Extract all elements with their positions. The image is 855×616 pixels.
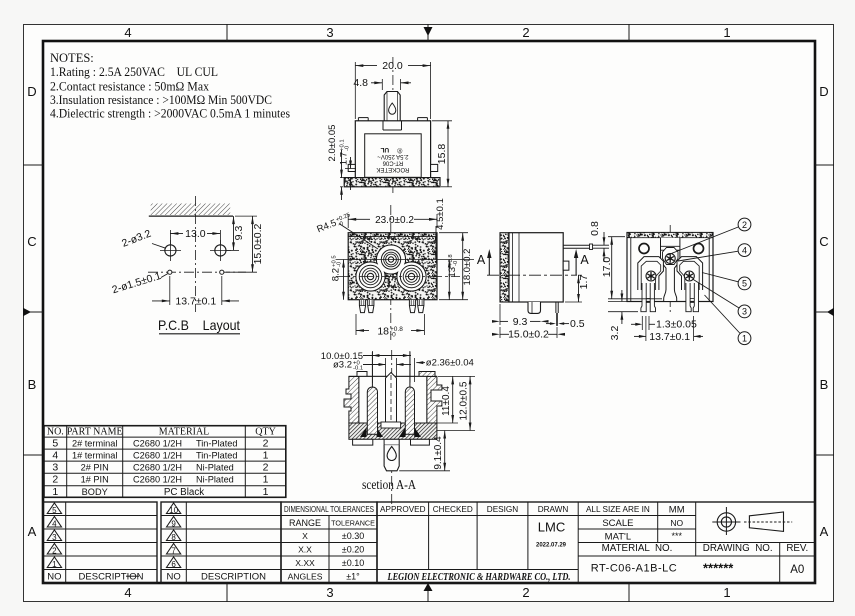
svg-text:A: A (28, 524, 37, 539)
svg-text:B: B (820, 377, 829, 392)
svg-text:SCALE: SCALE (602, 518, 633, 529)
svg-text:Ni-Plated: Ni-Plated (196, 475, 234, 485)
svg-text:Ni-Plated: Ni-Plated (196, 462, 234, 472)
svg-text:C2680 1/2H: C2680 1/2H (133, 438, 182, 448)
svg-text:MM: MM (669, 504, 685, 515)
svg-text:RANGE: RANGE (289, 518, 321, 528)
svg-text:11±0.4: 11±0.4 (441, 386, 452, 416)
svg-text:X.XX: X.XX (295, 558, 315, 568)
svg-text:MATERIAL NO.: MATERIAL NO. (602, 543, 673, 554)
svg-text:®: ® (396, 146, 402, 154)
svg-text:2: 2 (522, 585, 529, 600)
svg-text:A: A (820, 524, 829, 539)
svg-text:4: 4 (52, 519, 57, 528)
svg-text:C2680 1/2H: C2680 1/2H (133, 475, 182, 485)
svg-text:4: 4 (124, 25, 131, 40)
svg-text:LEGION ELECTRONIC & HARDWARE C: LEGION ELECTRONIC & HARDWARE CO., LTD. (387, 571, 571, 583)
svg-text:3: 3 (52, 533, 57, 542)
svg-text:13.7±0.1: 13.7±0.1 (649, 331, 690, 343)
svg-text:15.8: 15.8 (436, 144, 448, 165)
svg-text:5: 5 (52, 506, 57, 515)
svg-text:20.0: 20.0 (382, 60, 403, 72)
svg-text:9: 9 (171, 519, 176, 528)
svg-text:-0: -0 (390, 332, 396, 339)
svg-text:2# PIN: 2# PIN (81, 462, 109, 472)
svg-text:A0: A0 (790, 564, 804, 576)
svg-text:C2680 1/2H: C2680 1/2H (133, 450, 182, 460)
svg-text:DRAWING NO.: DRAWING NO. (703, 543, 773, 554)
svg-text:1.Rating : 2.5A 250VAC UL C: 1.Rating : 2.5A 250VAC UL CUL (50, 65, 218, 79)
svg-text:APPROVED: APPROVED (380, 505, 426, 514)
svg-text:2: 2 (52, 474, 58, 486)
svg-text:Tin-Plated: Tin-Plated (196, 438, 238, 448)
svg-text:12.0±0.5: 12.0±0.5 (459, 381, 470, 420)
svg-text:3: 3 (742, 307, 747, 317)
svg-text:NO: NO (166, 572, 180, 583)
svg-text:1: 1 (52, 560, 57, 569)
svg-text:9.3: 9.3 (513, 316, 528, 328)
svg-text:-0: -0 (453, 260, 459, 266)
svg-text:CHECKED: CHECKED (433, 505, 473, 514)
svg-text:17.0: 17.0 (601, 257, 613, 278)
svg-text:PART NAME: PART NAME (67, 427, 123, 438)
svg-text:DESCRIPTION: DESCRIPTION (201, 572, 266, 583)
svg-text:5: 5 (742, 279, 747, 289)
svg-text:2: 2 (263, 437, 269, 449)
svg-text:3.2: 3.2 (609, 326, 621, 341)
svg-text:X.X: X.X (298, 544, 312, 554)
svg-text:D: D (819, 84, 828, 99)
svg-text:C2680 1/2H: C2680 1/2H (133, 462, 182, 472)
svg-text:ø2.36±0.04: ø2.36±0.04 (426, 358, 474, 369)
svg-text:15.0±0.2: 15.0±0.2 (252, 223, 264, 264)
svg-text:1: 1 (263, 449, 269, 461)
svg-text:2.0±0.05: 2.0±0.05 (327, 125, 338, 162)
svg-text:4.5±0.1: 4.5±0.1 (435, 198, 446, 230)
svg-text:ALL SIZE ARE IN: ALL SIZE ARE IN (586, 505, 650, 514)
svg-text:C: C (27, 234, 36, 249)
svg-text:3: 3 (326, 25, 333, 40)
svg-text:TOLERANCE: TOLERANCE (331, 519, 375, 528)
svg-text:B: B (28, 377, 37, 392)
svg-text:±0.30: ±0.30 (342, 531, 364, 541)
svg-text:4.8: 4.8 (353, 77, 368, 89)
svg-text:1: 1 (263, 486, 269, 498)
svg-text:A: A (580, 253, 589, 267)
svg-text:1: 1 (723, 585, 730, 600)
svg-text:4: 4 (742, 245, 747, 255)
svg-text:15.0±0.2: 15.0±0.2 (508, 329, 549, 341)
svg-text:NO.: NO. (47, 427, 64, 438)
svg-text:±0.20: ±0.20 (342, 544, 364, 554)
svg-text:REV.: REV. (786, 543, 808, 554)
svg-text:2: 2 (522, 25, 529, 40)
svg-text:1# PIN: 1# PIN (81, 475, 109, 485)
svg-text:P.C.B Layout: P.C.B Layout (158, 317, 240, 333)
svg-text:1: 1 (52, 486, 58, 498)
svg-text:C: C (819, 234, 828, 249)
svg-text:2: 2 (263, 461, 269, 473)
svg-text:3: 3 (326, 585, 333, 600)
svg-text:10: 10 (169, 506, 178, 515)
svg-text:8: 8 (171, 533, 176, 542)
svg-text:1: 1 (263, 474, 269, 486)
svg-text:MAT'L: MAT'L (605, 532, 631, 543)
svg-text:1: 1 (742, 334, 747, 344)
svg-text:7: 7 (171, 546, 176, 555)
svg-text:DESCRIPTION: DESCRIPTION (79, 572, 144, 583)
svg-text:1.3±0.05: 1.3±0.05 (656, 319, 697, 331)
svg-text:18: 18 (377, 325, 389, 337)
svg-text:ANGLES: ANGLES (288, 571, 323, 581)
svg-text:0.5: 0.5 (570, 318, 585, 330)
svg-text:PC Black: PC Black (164, 487, 204, 498)
svg-text:MATERIAL: MATERIAL (159, 427, 210, 438)
svg-text:9.1±0.4: 9.1±0.4 (433, 436, 444, 470)
svg-text:3.Insulation resistance : >100: 3.Insulation resistance : >100MΩ Min 500… (50, 93, 272, 107)
svg-text:13: 13 (447, 267, 458, 278)
svg-text:NOTES:: NOTES: (50, 51, 94, 65)
svg-text:ROCKETEK: ROCKETEK (376, 166, 409, 172)
svg-text:DRAWN: DRAWN (538, 505, 569, 514)
svg-text:BODY: BODY (82, 487, 108, 497)
svg-text:18.0±0.2: 18.0±0.2 (462, 249, 473, 286)
svg-text:A: A (477, 253, 486, 267)
svg-text:DIMENSIONAL TOLERANCES: DIMENSIONAL TOLERANCES (284, 505, 374, 514)
svg-text:***: *** (671, 531, 682, 541)
svg-text:3: 3 (52, 461, 58, 473)
svg-text:13.0: 13.0 (185, 228, 206, 240)
svg-text:±1°: ±1° (346, 571, 360, 581)
svg-text:2: 2 (52, 546, 57, 555)
svg-text:1# terminal: 1# terminal (72, 450, 117, 460)
svg-text:1.7: 1.7 (339, 152, 350, 165)
svg-text:Tin-Plated: Tin-Plated (196, 450, 238, 460)
svg-text:ø3.2: ø3.2 (333, 360, 352, 371)
svg-text:NO: NO (670, 518, 683, 528)
svg-text:2022.07.29: 2022.07.29 (536, 543, 567, 549)
svg-text:2: 2 (742, 220, 747, 230)
svg-text:******: ****** (703, 561, 734, 576)
svg-text:LMC: LMC (538, 520, 565, 535)
svg-text:23.0±0.2: 23.0±0.2 (375, 215, 414, 226)
svg-text:scetion A-A: scetion A-A (362, 478, 417, 493)
svg-text:8.2: 8.2 (331, 268, 342, 281)
svg-text:±0.10: ±0.10 (342, 558, 364, 568)
svg-text:9.3: 9.3 (233, 226, 245, 241)
svg-text:4: 4 (52, 449, 58, 461)
svg-text:2.Contact resistance : 50mΩ Ma: 2.Contact resistance : 50mΩ Max (50, 80, 210, 94)
svg-text:RT-C06-A1B-LC: RT-C06-A1B-LC (591, 563, 677, 575)
svg-text:6: 6 (171, 560, 176, 569)
svg-text:NO: NO (47, 572, 61, 583)
svg-text:-0.1: -0.1 (353, 366, 363, 372)
svg-text:5: 5 (52, 437, 58, 449)
svg-text:X: X (302, 531, 308, 541)
svg-text:-0: -0 (337, 261, 343, 267)
svg-text:D: D (27, 84, 36, 99)
svg-text:UL: UL (380, 146, 389, 153)
svg-text:RT-C06: RT-C06 (382, 160, 403, 166)
svg-text:13.7±0.1: 13.7±0.1 (175, 295, 216, 307)
svg-text:2# terminal: 2# terminal (72, 438, 117, 448)
svg-text:QTY: QTY (255, 427, 276, 438)
svg-text:DESIGN: DESIGN (487, 505, 518, 514)
svg-text:-0: -0 (345, 145, 351, 151)
svg-text:1: 1 (723, 25, 730, 40)
svg-text:4: 4 (124, 585, 131, 600)
svg-text:4.Dielectric strength : >2000V: 4.Dielectric strength : >2000VAC 0.5mA 1… (50, 107, 290, 121)
svg-text:0.8: 0.8 (589, 221, 601, 236)
svg-text:1.7: 1.7 (578, 275, 590, 290)
